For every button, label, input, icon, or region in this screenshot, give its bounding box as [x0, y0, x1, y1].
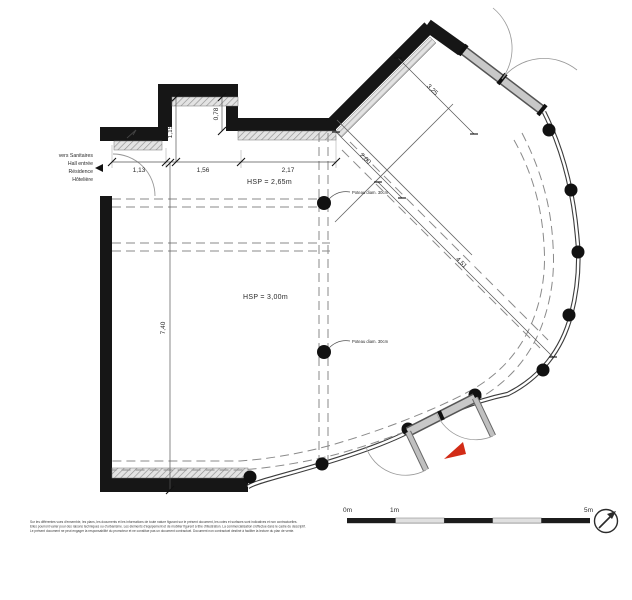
dim-label-room-height: 7,40 [160, 321, 167, 334]
hatch-diagonal [336, 37, 436, 137]
disclaimer-line-2: Elles pourront varier pour des raisons t… [30, 525, 306, 529]
wall-bottom [100, 478, 248, 492]
scale-bar: 0m 1m 5m [343, 507, 593, 523]
interior-column-lower [317, 345, 331, 359]
facade-column [543, 124, 556, 137]
dim-label-step-height: 0,78 [213, 107, 220, 120]
interior-column-upper [317, 196, 331, 210]
poteau-leader-upper [329, 192, 350, 199]
disclaimer-line-1: Sur les différentes vues d'ensemble, les… [30, 520, 297, 524]
dim-line [398, 58, 474, 134]
hatch-top-lower [238, 131, 336, 140]
scale-label-5m: 5m [584, 507, 593, 514]
floor-plan-svg: 1,13 1,56 2,17 1,15 0,78 7,40 3,25 2,00 … [0, 0, 632, 600]
wall-diagonal [331, 27, 429, 125]
facade-column [572, 246, 585, 259]
wall-top-lower [226, 118, 336, 131]
scale-label-0m: 0m [343, 507, 352, 514]
dash-diag2 [342, 150, 540, 348]
bottom-door [366, 398, 493, 475]
facade-column [563, 309, 576, 322]
hsp-lower-label: HSP = 3,00m [243, 294, 288, 301]
dim-label-1: 1,13 [133, 167, 146, 174]
dim-label-niche-height: 1,15 [167, 125, 174, 138]
poteau-label-upper: Poteau diam. 30cm [352, 190, 389, 195]
left-note-line-1: vers Sanitaires [59, 153, 94, 159]
dim-label-2: 1,56 [197, 167, 210, 174]
left-note-line-2: Hall entrée [68, 161, 93, 167]
scale-label-1m: 1m [390, 507, 399, 514]
wall-top-upper [158, 84, 238, 97]
scale-seg-1 [347, 518, 396, 523]
left-note-line-3: Résidence [68, 169, 93, 175]
dim-label-diag-upper: 3,25 [425, 83, 439, 97]
dim-label-3: 2,17 [282, 167, 295, 174]
poteau-leader-lower [329, 341, 350, 348]
disclaimer-line-3: Le présent document ne peut engager la r… [30, 529, 294, 533]
dim-label-diag-mid: 2,00 [358, 152, 372, 166]
door-swing-arc [502, 58, 577, 79]
door-leaf [475, 398, 493, 436]
facade-column [316, 458, 329, 471]
north-compass compass-needle-icon [595, 510, 618, 533]
door-leaf [408, 432, 426, 470]
hatch-niche-sill [114, 141, 162, 150]
construction-lines [335, 104, 472, 255]
disclaimer: Sur les différentes vues d'ensemble, les… [30, 520, 306, 533]
scale-seg-5 [541, 518, 590, 523]
left-note-line-4: Hôtelière [72, 177, 93, 183]
floor-plan-page: 1,13 1,56 2,17 1,15 0,78 7,40 3,25 2,00 … [0, 0, 632, 600]
walls [100, 25, 462, 492]
poteau-label-lower: Poteau diam. 30cm [352, 339, 389, 344]
scale-seg-2 [396, 518, 445, 523]
wall-left [100, 196, 112, 480]
entrance-marker red-arrowhead-icon [444, 442, 466, 459]
dim-line [378, 182, 553, 357]
top-right-door [459, 8, 577, 115]
hatch-top-upper [172, 97, 238, 106]
facade-column [537, 364, 550, 377]
facade-column [565, 184, 578, 197]
door-swing-arc [493, 8, 512, 79]
hsp-upper-label: HSP = 2,65m [247, 179, 292, 186]
door-swing-arc [113, 154, 155, 196]
facade-column [244, 471, 257, 484]
scale-seg-4 [493, 518, 542, 523]
dash-diag1 [350, 142, 548, 340]
direction-arrow left-triangle-icon [95, 164, 103, 172]
scale-seg-3 [444, 518, 493, 523]
cross-line-1 [337, 120, 472, 255]
